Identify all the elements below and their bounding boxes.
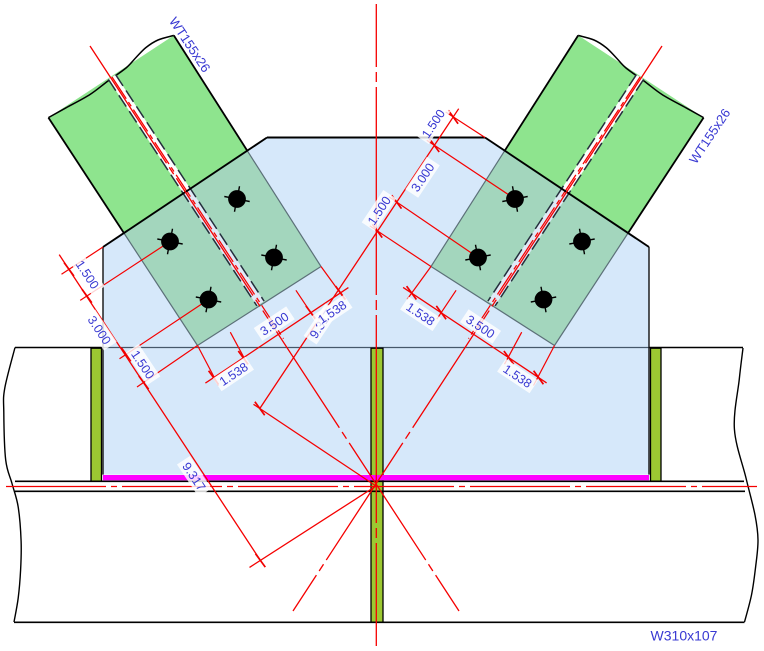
svg-text:W310x107: W310x107 — [651, 627, 718, 643]
